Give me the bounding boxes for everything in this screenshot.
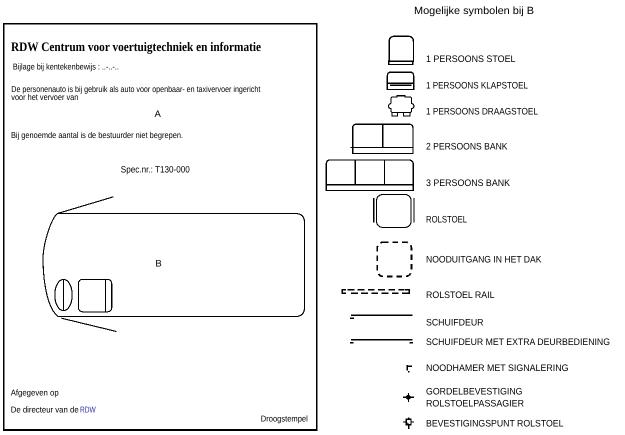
svg-text:ROLSTOEL: ROLSTOEL <box>426 215 467 226</box>
svg-text:SCHUIFDEUR: SCHUIFDEUR <box>426 318 484 329</box>
svg-text:3 PERSOONS BANK: 3 PERSOONS BANK <box>426 178 511 189</box>
svg-text:Droogstempel: Droogstempel <box>261 414 308 424</box>
svg-text:1 PERSOONS STOEL: 1 PERSOONS STOEL <box>426 54 516 65</box>
svg-text:NOODUITGANG IN HET DAK: NOODUITGANG IN HET DAK <box>426 254 542 265</box>
svg-text:GORDELBEVESTIGING: GORDELBEVESTIGING <box>426 386 523 397</box>
svg-text:Bijlage bij kentekenbewijs : .: Bijlage bij kentekenbewijs : ..-..-.. <box>13 62 119 72</box>
svg-text:RDW Centrum voor voertuigtechn: RDW Centrum voor voertuigtechniek en inf… <box>11 39 261 54</box>
svg-text:1 PERSOONS DRAAGSTOEL: 1 PERSOONS DRAAGSTOEL <box>426 107 538 118</box>
svg-text:NOODHAMER MET SIGNALERING: NOODHAMER MET SIGNALERING <box>426 363 569 374</box>
svg-text:ROLSTOEL RAIL: ROLSTOEL RAIL <box>426 290 495 301</box>
svg-text:1 PERSOONS KLAPSTOEL: 1 PERSOONS KLAPSTOEL <box>426 80 528 91</box>
svg-text:RDW: RDW <box>80 405 96 415</box>
svg-text:Spec.nr.: T130-000: Spec.nr.: T130-000 <box>121 165 190 175</box>
svg-text:Afgegeven op: Afgegeven op <box>11 387 59 397</box>
svg-text:Mogelijke symbolen bij B: Mogelijke symbolen bij B <box>414 5 534 17</box>
svg-text:Bij genoemde aantal is de best: Bij genoemde aantal is de bestuurder nie… <box>11 130 183 140</box>
svg-text:B: B <box>155 259 161 270</box>
svg-text:BEVESTIGINGSPUNT ROLSTOEL: BEVESTIGINGSPUNT ROLSTOEL <box>426 419 564 430</box>
svg-text:voor het vervoer van: voor het vervoer van <box>11 92 78 102</box>
svg-text:A: A <box>155 109 162 120</box>
svg-text:SCHUIFDEUR MET EXTRA DEURBEDIE: SCHUIFDEUR MET EXTRA DEURBEDIENING <box>426 337 610 348</box>
svg-text:2 PERSOONS BANK: 2 PERSOONS BANK <box>426 142 508 153</box>
svg-text:ROLSTOELPASSAGIER: ROLSTOELPASSAGIER <box>426 399 524 410</box>
svg-text:De directeur van de: De directeur van de <box>11 405 79 415</box>
